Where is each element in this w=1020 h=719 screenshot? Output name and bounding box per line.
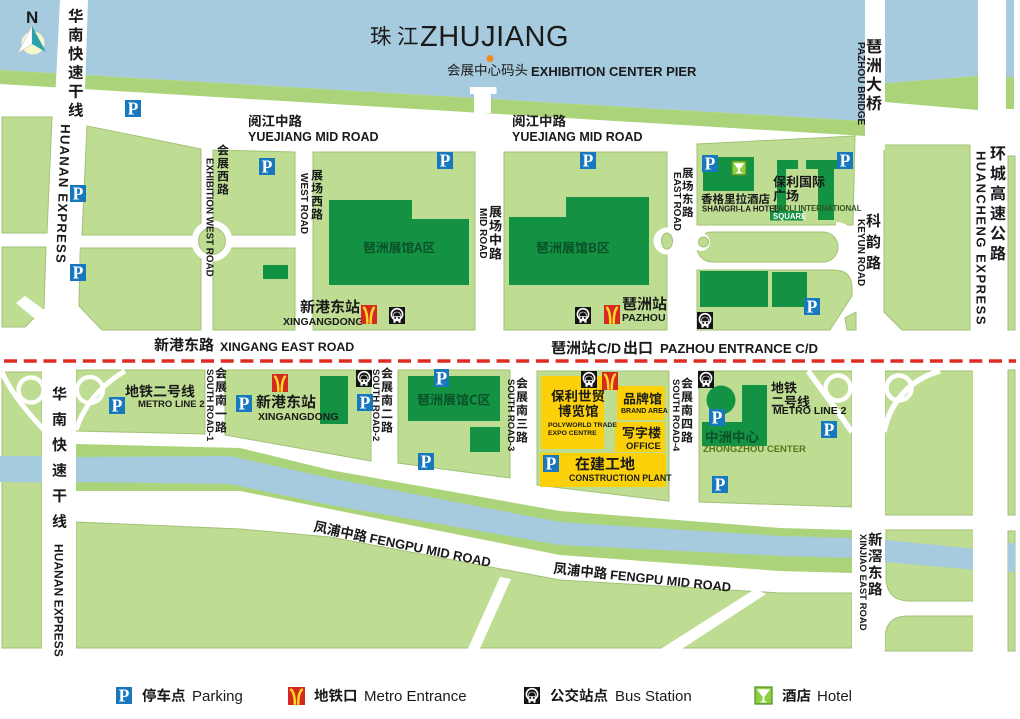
svg-text:P: P (128, 98, 139, 118)
svg-text:SQUARE: SQUARE (773, 212, 806, 221)
svg-text:N: N (26, 8, 38, 27)
svg-text:P: P (360, 392, 371, 412)
svg-text:WEST ROAD: WEST ROAD (298, 173, 309, 234)
svg-text:P: P (705, 153, 716, 173)
svg-text:BRAND AREA: BRAND AREA (621, 408, 668, 415)
svg-text:SOUTH ROAD-2: SOUTH ROAD-2 (370, 369, 381, 441)
svg-text:SOUTH ROAD-4: SOUTH ROAD-4 (670, 379, 681, 452)
svg-text:PAZHOU: PAZHOU (622, 312, 666, 324)
svg-text:P: P (436, 369, 447, 389)
svg-text:C/D: C/D (597, 340, 621, 356)
svg-text:PAZHOU BRIDGE: PAZHOU BRIDGE (855, 42, 866, 125)
svg-text:CONSTRUCTION PLANT: CONSTRUCTION PLANT (569, 473, 672, 483)
svg-text:PAZHOU ENTRANCE C/D: PAZHOU ENTRANCE C/D (660, 341, 818, 356)
svg-text:METRO LINE 2: METRO LINE 2 (138, 399, 205, 410)
svg-text:P: P (546, 453, 557, 473)
svg-text:XINJIAO EAST ROAD: XINJIAO EAST ROAD (857, 534, 868, 631)
svg-text:Metro Entrance: Metro Entrance (364, 688, 467, 705)
svg-text:MID ROAD: MID ROAD (477, 208, 488, 259)
svg-text:P: P (715, 474, 726, 494)
svg-text:SHANGRI-LA HOTEL: SHANGRI-LA HOTEL (702, 205, 779, 214)
svg-text:XINGANGDONG: XINGANGDONG (283, 316, 364, 328)
svg-text:SOUTH ROAD-3: SOUTH ROAD-3 (505, 379, 516, 451)
svg-text:P: P (824, 419, 835, 439)
svg-text:OFFICE: OFFICE (626, 441, 661, 452)
svg-text:P: P (440, 150, 451, 170)
svg-text:P: P (421, 451, 432, 471)
svg-text:YUEJIANG MID ROAD: YUEJIANG MID ROAD (512, 130, 643, 144)
svg-text:EAST ROAD: EAST ROAD (671, 172, 682, 231)
svg-text:METRO LINE 2: METRO LINE 2 (773, 405, 847, 417)
svg-text:P: P (712, 407, 723, 427)
svg-text:Parking: Parking (192, 688, 243, 705)
svg-text:EXHIBITION CENTER PIER: EXHIBITION CENTER PIER (531, 64, 697, 79)
svg-text:P: P (807, 296, 818, 316)
svg-text:P: P (112, 395, 123, 415)
svg-text:Hotel: Hotel (817, 688, 852, 705)
svg-text:P: P (262, 156, 273, 176)
svg-text:Bus Station: Bus Station (615, 688, 692, 705)
svg-text:XINGANGDONG: XINGANGDONG (258, 411, 339, 423)
svg-text:P: P (840, 150, 851, 170)
svg-text:P: P (73, 262, 84, 282)
svg-text:SOUTH ROAD-1: SOUTH ROAD-1 (204, 369, 215, 442)
svg-text:P: P (239, 393, 250, 413)
svg-text:EXPO CENTRE: EXPO CENTRE (548, 430, 597, 437)
svg-text:KEYUN ROAD: KEYUN ROAD (855, 219, 866, 286)
svg-text:P: P (119, 685, 130, 705)
svg-text:HUANAN EXPRESS: HUANAN EXPRESS (52, 544, 66, 657)
svg-text:ZHONGZHOU CENTER: ZHONGZHOU CENTER (703, 444, 806, 455)
svg-text:P: P (73, 183, 84, 203)
svg-text:P: P (583, 150, 594, 170)
svg-text:YUEJIANG MID ROAD: YUEJIANG MID ROAD (248, 130, 379, 144)
svg-text:ZHUJIANG: ZHUJIANG (420, 21, 569, 53)
svg-text:XINGANG EAST ROAD: XINGANG EAST ROAD (220, 340, 354, 354)
svg-text:POLYWORLD TRADE: POLYWORLD TRADE (548, 422, 617, 429)
svg-text:EXHIBITION WEST ROAD: EXHIBITION WEST ROAD (204, 158, 215, 277)
svg-text:HUANCHENG EXPRESS: HUANCHENG EXPRESS (974, 151, 989, 326)
